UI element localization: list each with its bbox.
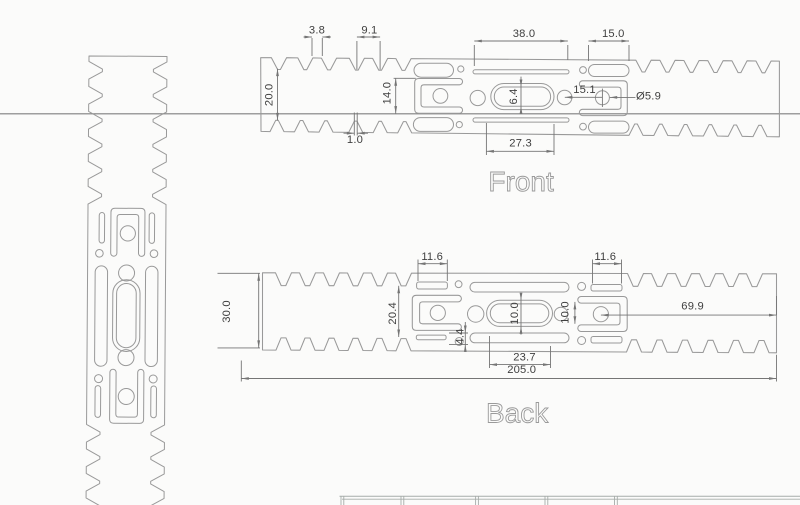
- svg-text:Ø5.9: Ø5.9: [636, 91, 661, 103]
- svg-text:15.0: 15.0: [602, 28, 625, 40]
- svg-text:14.0: 14.0: [382, 82, 394, 105]
- svg-text:Front: Front: [488, 166, 554, 197]
- svg-text:3.8: 3.8: [309, 25, 325, 37]
- svg-text:20.4: 20.4: [387, 302, 399, 325]
- svg-text:205.0: 205.0: [507, 364, 536, 376]
- svg-text:10.0: 10.0: [509, 302, 521, 325]
- svg-text:4.4: 4.4: [454, 328, 466, 344]
- svg-text:9.1: 9.1: [361, 25, 377, 37]
- svg-text:15.1: 15.1: [573, 84, 596, 96]
- svg-text:23.7: 23.7: [513, 351, 536, 363]
- svg-text:20.0: 20.0: [263, 84, 275, 107]
- svg-text:10.0: 10.0: [560, 301, 572, 324]
- svg-text:27.3: 27.3: [509, 138, 532, 150]
- svg-text:38.0: 38.0: [513, 28, 536, 40]
- svg-text:69.9: 69.9: [681, 301, 704, 313]
- svg-text:Back: Back: [486, 398, 549, 429]
- svg-text:11.6: 11.6: [421, 251, 443, 263]
- svg-text:30.0: 30.0: [221, 300, 233, 323]
- svg-text:1.0: 1.0: [347, 134, 363, 146]
- svg-text:11.6: 11.6: [594, 251, 616, 263]
- svg-text:6.4: 6.4: [508, 88, 520, 104]
